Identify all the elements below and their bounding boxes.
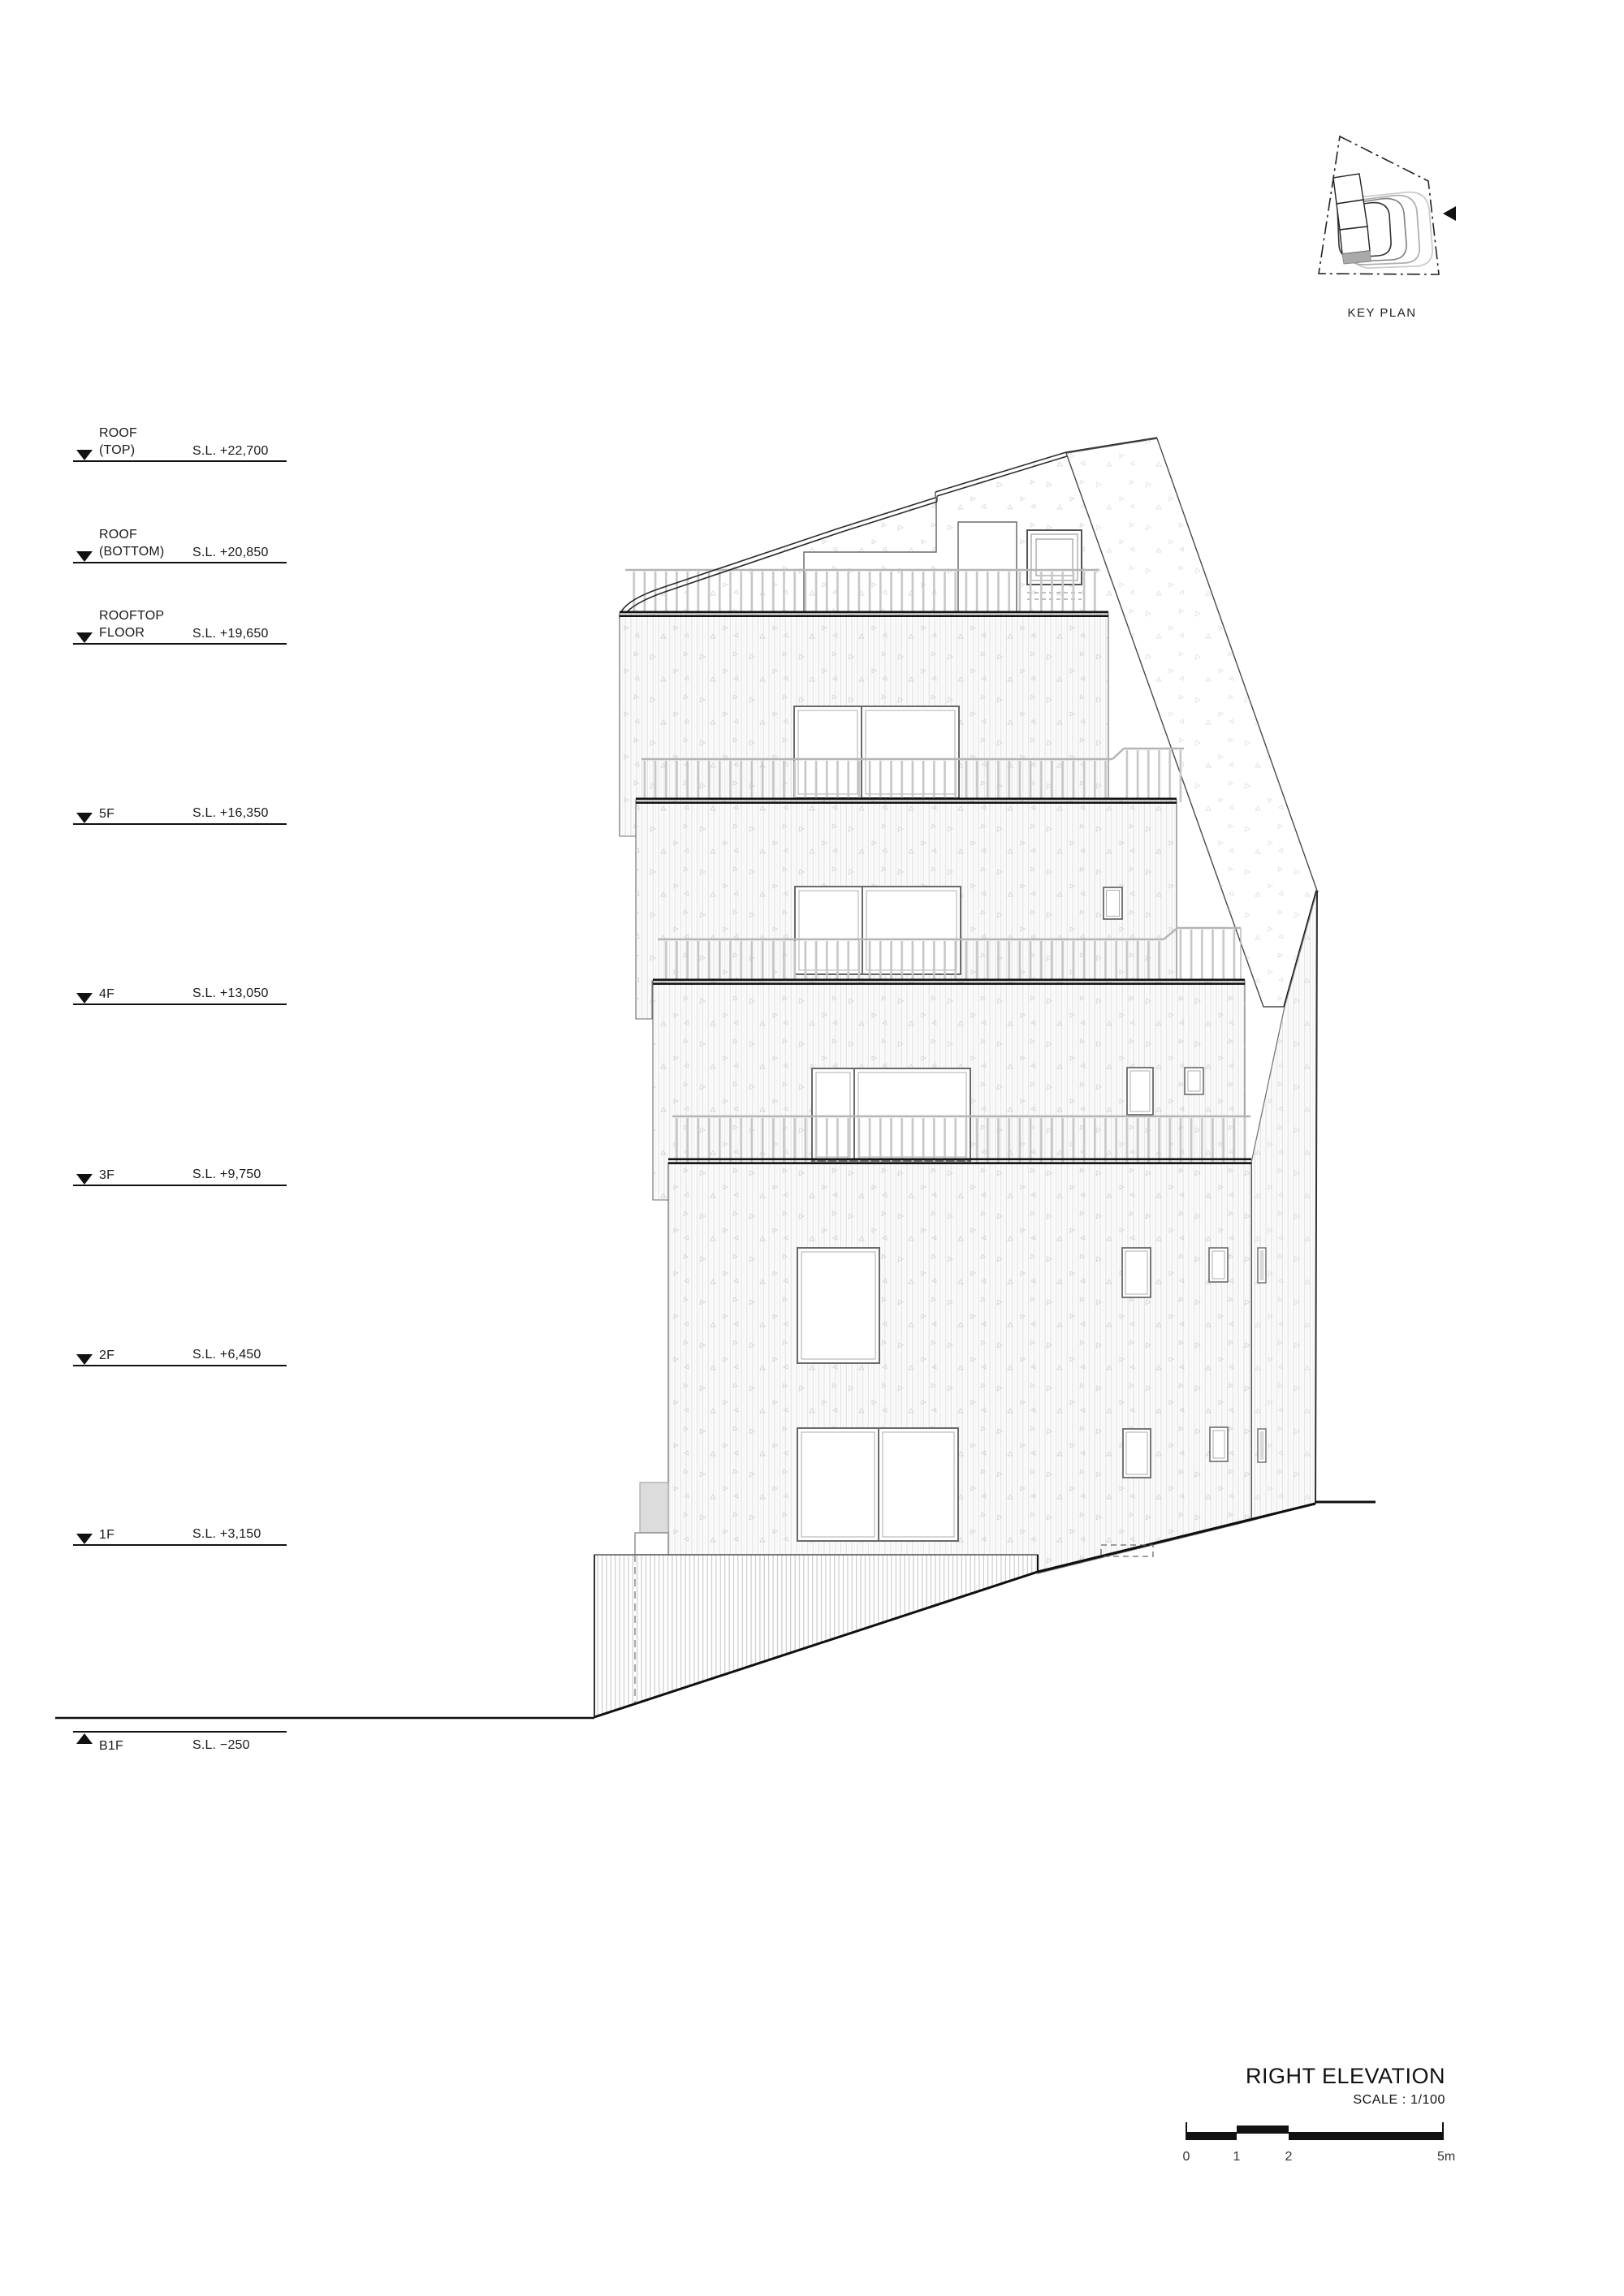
level-label: 3F <box>99 1167 114 1184</box>
level-value: S.L. +9,750 <box>192 1167 261 1183</box>
level-triangle-icon <box>76 1354 93 1365</box>
level-label: 4F <box>99 986 114 1003</box>
key-plan-diagram <box>1319 136 1456 274</box>
view-direction-arrow-icon <box>1443 206 1456 221</box>
level-triangle-icon <box>76 1534 93 1544</box>
drawing-sheet: ROOF(TOP) S.L. +22,700 ROOF(BOTTOM) S.L.… <box>0 0 1624 2296</box>
level-label: 1F <box>99 1526 114 1543</box>
title-block: RIGHT ELEVATION SCALE : 1/100 <box>1039 2064 1445 2108</box>
key-plan-caption: KEY PLAN <box>1301 306 1463 320</box>
level-triangle-icon <box>76 632 93 643</box>
level-value: S.L. +3,150 <box>192 1526 261 1543</box>
scale-bar-segment <box>1237 2126 1289 2132</box>
level-triangle-icon <box>76 450 93 460</box>
level-value: S.L. +19,650 <box>192 626 269 642</box>
level-line <box>73 1544 287 1546</box>
level-label: ROOFTOPFLOOR <box>99 607 164 641</box>
level-label: ROOF(BOTTOM) <box>99 526 164 560</box>
window <box>797 1248 879 1363</box>
level-triangle-icon <box>76 1733 93 1744</box>
level-label: 2F <box>99 1347 114 1364</box>
window <box>1123 1429 1151 1478</box>
terrace-railing-3f <box>672 1116 1250 1163</box>
scale-bar-label: 1 <box>1233 2150 1241 2164</box>
wall-main <box>668 1159 1266 1574</box>
scale-bar-label: 2 <box>1285 2150 1293 2164</box>
level-value: S.L. −250 <box>192 1737 250 1754</box>
level-triangle-icon <box>76 1174 93 1185</box>
window <box>1258 1248 1266 1283</box>
window <box>1209 1248 1228 1282</box>
elevation-drawing <box>0 0 1624 2296</box>
window <box>797 1428 958 1541</box>
level-value: S.L. +13,050 <box>192 986 269 1002</box>
window <box>1122 1248 1151 1297</box>
level-line <box>73 1003 287 1005</box>
window <box>1104 887 1122 919</box>
level-line <box>73 1731 287 1733</box>
level-value: S.L. +20,850 <box>192 545 269 561</box>
drawing-scale: SCALE : 1/100 <box>1039 2093 1445 2108</box>
level-line <box>73 643 287 645</box>
level-value: S.L. +16,350 <box>192 805 269 822</box>
window <box>1185 1068 1203 1094</box>
level-label: B1F <box>99 1737 123 1754</box>
level-line <box>73 1365 287 1366</box>
window <box>1210 1427 1228 1461</box>
retaining-wall <box>594 1555 1038 1717</box>
entry-structure <box>635 1482 668 1555</box>
level-triangle-icon <box>76 993 93 1003</box>
level-value: S.L. +22,700 <box>192 443 269 460</box>
scale-bar: 0 1 2 5m <box>1186 2121 1444 2169</box>
scale-bar-segment <box>1186 2134 1237 2140</box>
scale-bar-label: 0 <box>1183 2150 1190 2164</box>
level-line <box>73 1185 287 1186</box>
scale-bar-segment <box>1289 2134 1444 2140</box>
level-line <box>73 562 287 563</box>
level-label: ROOF(TOP) <box>99 425 137 459</box>
window <box>1258 1429 1266 1462</box>
level-value: S.L. +6,450 <box>192 1347 261 1363</box>
scale-bar-label: 5m <box>1437 2150 1455 2164</box>
level-label: 5F <box>99 805 114 822</box>
level-triangle-icon <box>76 813 93 823</box>
level-line <box>73 823 287 825</box>
level-triangle-icon <box>76 551 93 562</box>
drawing-title: RIGHT ELEVATION <box>1039 2064 1445 2089</box>
window <box>1127 1068 1153 1115</box>
level-line <box>73 460 287 462</box>
